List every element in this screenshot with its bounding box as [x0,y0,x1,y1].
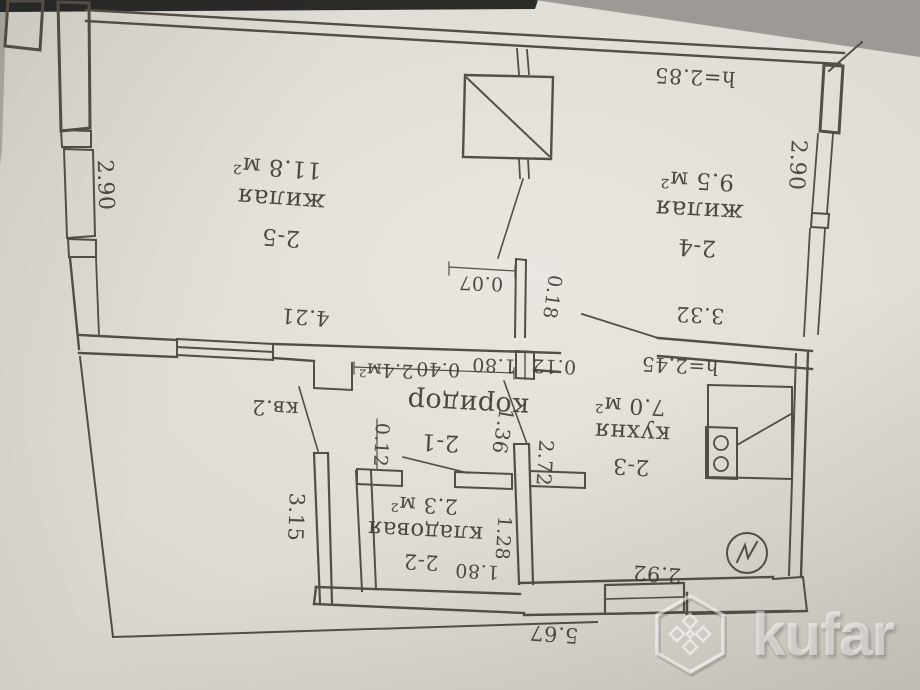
floorplan-drawing [0,0,920,690]
room24-type: жилая [654,194,744,228]
room24-number: 2-4 [677,233,717,261]
height-lower-label: h=2.45 [641,352,719,380]
kitchen-type: кухня [593,417,671,449]
dim-kitchen-wall-inner: 2.72 [531,439,558,487]
room25-type: жилая [236,182,327,217]
dim-stub-width: 0.07 [458,271,503,295]
dim-storage-wall: 1.28 [490,515,515,561]
dim-kitchen-bottom: 2.92 [632,560,682,587]
dim-lower-left-wall: 3.15 [283,492,309,542]
kitchen-fixtures [706,385,792,573]
dim-left-wall: 2.90 [92,159,119,211]
storage-number: 2-2 [403,549,440,575]
dim-hall-opening: 1.80 [471,353,516,377]
dim-kitchen-wall: 3.32 [675,302,725,329]
room25-number: 2-5 [261,223,301,252]
floorplan-photo: h=2.85 2.90 2.90 11.8 м² жилая 2-5 9.5 м… [0,0,920,690]
dim-room25-wall: 4.21 [280,303,330,330]
corridor-number: 2-1 [420,428,460,456]
dim-niche: 0.40 [415,357,460,381]
apartment-label: кв.2 [251,395,299,421]
height-main-label: h=2.85 [654,63,736,91]
meter-icon [727,533,767,573]
south-walls [314,577,790,615]
room24-area: 9.5 м² [659,165,734,195]
corridor-area: 2.4м² [358,358,414,382]
kitchen-area: 7.0 м² [594,391,666,420]
kitchen-number: 2-3 [612,453,650,480]
dim-yard: 5.67 [529,620,579,647]
dim-right-wall: 2.90 [783,139,811,191]
dim-stub2: 0.12 [531,354,576,378]
storage-area: 2.3 м² [390,491,459,519]
dim-partition: 0.12 [369,422,393,467]
dim-storage-opening: 1.80 [454,559,499,583]
